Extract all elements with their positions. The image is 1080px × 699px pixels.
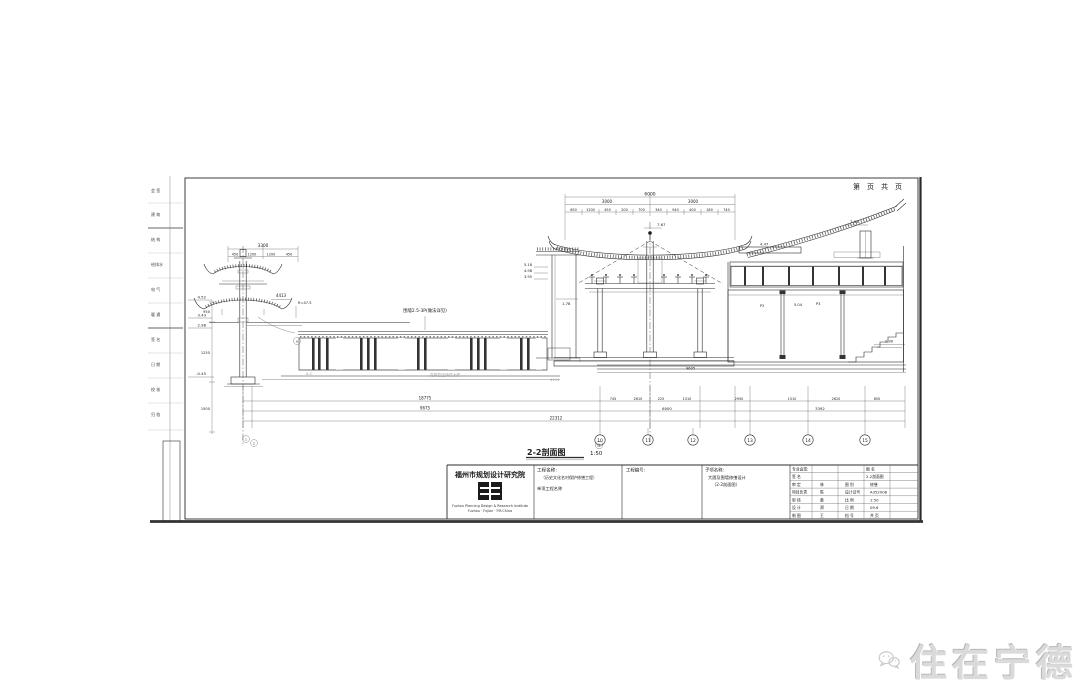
edge-stamp-text: 暖 通 xyxy=(151,311,160,317)
wing-wall: 5.18 4.98 3.95 1.78 xyxy=(524,249,580,362)
dim-text: 6000 xyxy=(644,192,655,198)
sheet-name-line2: （2-2剖面图） xyxy=(712,481,740,488)
boundary-wall-fence: 围墙2.5-3P(做法详见) 6 A.C 花岗岩压顶详大样 4111 xyxy=(262,307,560,382)
dim-text: 400 xyxy=(689,208,695,212)
sub-project-label: 单项工程名称 xyxy=(537,485,562,492)
purlin-stubs xyxy=(589,274,709,283)
dim-text: 1510 xyxy=(683,397,692,401)
note-text: A.C xyxy=(306,371,313,376)
grid-cell: 审 核 xyxy=(792,497,801,502)
edge-stamp-text: 给排水 xyxy=(151,261,163,267)
dim-text: 200 xyxy=(621,208,627,212)
grid-cell: 比 例 xyxy=(845,497,854,502)
dim-text: 650 xyxy=(874,397,880,401)
sheet-name-line1: 大厝及围墙修缮设计 xyxy=(708,474,746,481)
blueprint-sheet: 第 页 共 页 会 签 建 筑 结 构 给排水 电 气 暖 通 签 名 日 期 … xyxy=(0,0,1080,699)
dim-text: 1200 xyxy=(248,253,257,257)
axis-grid-bubbles: 1 2 10 11 12 13 14 15 xyxy=(243,428,871,446)
elevation-text: 3.95 xyxy=(524,275,532,279)
grid-cell: 设 计 xyxy=(792,505,801,510)
wechat-icon xyxy=(878,636,900,684)
grid-cell: 制 图 xyxy=(792,513,801,518)
institute-name: 福州市规划设计研究院 xyxy=(454,470,525,479)
elevation-text: 4.47 xyxy=(760,242,769,247)
edge-stamp-text: 会 签 xyxy=(151,187,160,193)
grid-cell: 王 xyxy=(820,513,824,518)
dim-text: 6000 xyxy=(662,406,672,411)
scanned-blueprint-page: { "watermark": { "text": "住在宁德" }, "shee… xyxy=(0,0,1080,699)
institute-logo xyxy=(478,482,502,500)
elevation-text: 4.52 xyxy=(198,295,207,300)
dim-text: 3392 xyxy=(815,406,825,411)
grid-cell: 修缮 xyxy=(870,482,878,487)
dim-text: 9675 xyxy=(420,406,431,411)
dim-text: 2620 xyxy=(832,397,841,401)
grid-cell: A352008 xyxy=(870,490,888,495)
dim-text: 22312 xyxy=(550,416,563,421)
axis-bubble-label: 11 xyxy=(645,438,651,444)
grid-cell: 项目负责 xyxy=(792,490,807,495)
axis-bubble-label: 12 xyxy=(690,438,696,444)
project-name: （历史文化名村保护修缮工程） xyxy=(541,474,597,480)
edge-stamp-text: 校 核 xyxy=(151,386,160,392)
grid-cell: 日 期 xyxy=(845,505,854,510)
dim-text: 650 xyxy=(570,208,576,212)
grid-cell: 2-2剖面图 xyxy=(866,474,884,479)
wechat-watermark: 住在宁德 xyxy=(878,628,1078,692)
grid-cell: 林 xyxy=(820,482,824,487)
barcode-block xyxy=(163,441,180,521)
edge-stamp-text: 归 档 xyxy=(151,411,160,417)
dim-text: 1510 xyxy=(788,397,797,401)
callout-text: R=47.5 xyxy=(298,301,312,305)
callout-text: 4413 xyxy=(276,293,287,298)
elevation-text: 5.18 xyxy=(524,263,533,267)
sheet-name-cell: 子项名称: 大厝及围墙修缮设计 （2-2剖面图） xyxy=(705,467,746,489)
signature-grid: 专业会签: 图 名 签 名 2-2剖面图 审 定 林 图 别 修缮 项目负责 陈… xyxy=(792,467,888,518)
dim-text: 18775 xyxy=(419,396,432,401)
elevation-text: 2.98 xyxy=(198,323,207,328)
note-text: 花岗岩压顶详大样 xyxy=(430,373,461,378)
dim-text: 340 xyxy=(655,208,661,212)
section-scale-text: 1:50 xyxy=(590,451,603,457)
note-text: 5.04 xyxy=(794,303,803,307)
grid-cell: 黄 xyxy=(820,497,824,502)
note-text: P2 xyxy=(760,304,764,308)
dim-text: 3000 xyxy=(688,199,699,204)
dim-text: 745 xyxy=(610,397,616,401)
elevation-text: -0.45 xyxy=(196,371,206,376)
section-title-text: 2-2剖面图 xyxy=(527,447,565,457)
dim-text: 3300 xyxy=(258,243,269,248)
axis-bubble-label: 1 xyxy=(245,438,247,442)
grid-cell: 签 名 xyxy=(792,474,801,479)
dim-text: 2950 xyxy=(735,397,744,401)
edge-stamp-text: 建 筑 xyxy=(151,211,160,217)
edge-stamp-text: 结 构 xyxy=(151,236,160,242)
job-number-label: 工程编号: xyxy=(626,467,645,474)
note-text: 4111 xyxy=(550,377,560,382)
grid-cell: 共 页 xyxy=(870,513,879,518)
job-number-cell: 工程编号: xyxy=(626,467,645,474)
grid-cell: 设计证号 xyxy=(845,490,860,495)
dim-text: 1200 xyxy=(267,253,276,257)
axis-bubble-label: 15 xyxy=(862,438,868,444)
binding-strip: 会 签 建 筑 结 构 给排水 电 气 暖 通 签 名 日 期 校 核 归 档 xyxy=(148,187,183,521)
elevation-text: 2.30 xyxy=(885,339,894,344)
dim-text: 180 xyxy=(706,208,712,212)
institute-name-en: Fuzhou Planning Design & Research Instit… xyxy=(452,504,528,508)
dimension-rows: 18775 745 2610 225 1510 2950 1510 2620 6… xyxy=(243,386,905,428)
axis-bubble-label: 13 xyxy=(747,438,753,444)
grid-cell: 陈 xyxy=(820,490,824,495)
sheet-name-label: 子项名称: xyxy=(705,467,724,474)
institute-address-en: Fuzhou · Fujian · P.R.China xyxy=(468,509,512,513)
project-cell: 工程名称: （历史文化名村保护修缮工程） 单项工程名称 xyxy=(537,467,597,493)
grid-cell: 郑 xyxy=(820,505,824,510)
note-text: 9605 xyxy=(686,367,695,371)
elevation-text: 3.43 xyxy=(198,313,207,318)
institute-cell: 福州市规划设计研究院 Fuzhou Planning Design & Rese… xyxy=(452,470,528,513)
dim-text: 225 xyxy=(658,397,664,401)
dim-text: 450 xyxy=(604,208,610,212)
note-text: P3 xyxy=(816,302,820,306)
axis-bubble-label: 2 xyxy=(253,442,255,446)
grid-cell: 档 号 xyxy=(845,513,854,518)
dim-text: 3000 xyxy=(602,199,613,204)
wall-label: 围墙2.5-3P(做法详见) xyxy=(403,307,447,314)
grid-cell: 09.6 xyxy=(870,505,879,510)
edge-stamp-text: 电 气 xyxy=(151,286,160,292)
axis-bubble-label: 6 xyxy=(296,340,298,344)
edge-stamp-text: 日 期 xyxy=(151,361,160,367)
dim-text: 450 xyxy=(286,253,292,257)
right-wing-elevation: 7.05 4.47 P2 5.04 P3 9605 2.30 xyxy=(597,199,906,373)
dim-text: 2610 xyxy=(634,397,643,401)
grid-cell: 图 名 xyxy=(866,467,875,472)
drawing-title: 2-2剖面图 1:50 改 xyxy=(526,441,603,460)
elevation-text: 7.67 xyxy=(657,222,666,227)
dim-text: 940 xyxy=(672,208,678,212)
grid-cell: 专业会签: xyxy=(792,467,808,472)
grid-cell: 图 别 xyxy=(845,482,854,487)
dim-text: 1200 xyxy=(586,208,595,212)
dim-text: 1500 xyxy=(201,407,211,411)
axis-bubble-label: 14 xyxy=(805,438,811,444)
title-block: 福州市规划设计研究院 Fuzhou Planning Design & Rese… xyxy=(447,465,918,519)
dim-text: 700 xyxy=(638,208,644,212)
elevation-text: 4.98 xyxy=(524,269,533,273)
edge-stamp-text: 签 名 xyxy=(151,336,160,342)
grid-cell: 1:50 xyxy=(870,497,879,502)
dim-text: 1.78 xyxy=(562,301,571,306)
watermark-text: 住在宁德 xyxy=(910,633,1078,687)
dim-text: 740 xyxy=(723,208,729,212)
dim-text: 1255 xyxy=(201,351,210,355)
dim-text: 450 xyxy=(232,253,238,257)
page-note: 第 页 共 页 xyxy=(853,182,902,191)
grid-cell: 审 定 xyxy=(792,482,801,487)
elevation-text: 7.05 xyxy=(850,219,859,224)
project-label: 工程名称: xyxy=(537,467,557,474)
